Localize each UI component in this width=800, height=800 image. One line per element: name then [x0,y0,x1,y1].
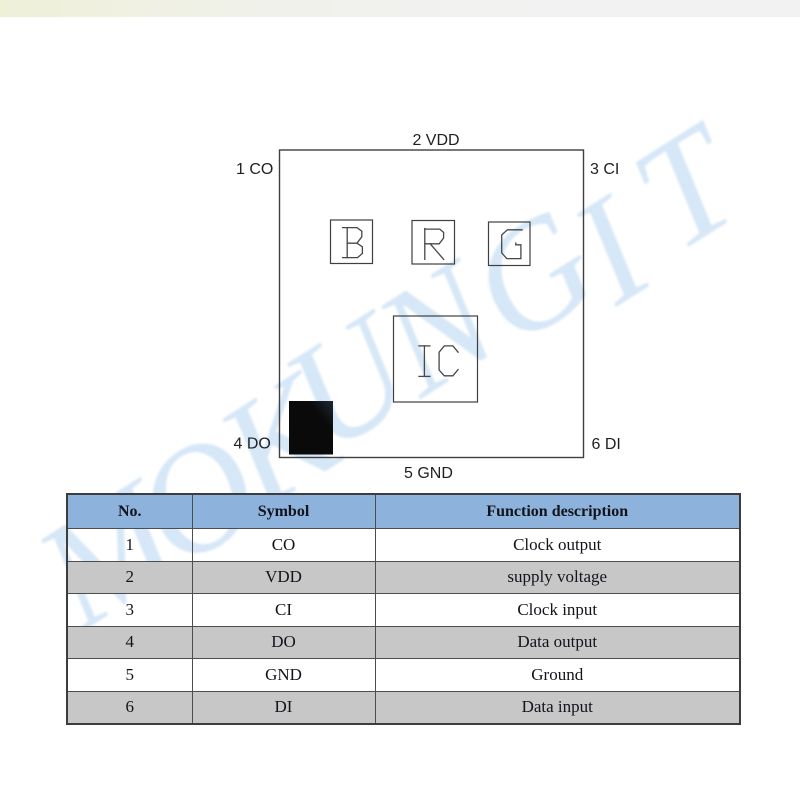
svg-text:4 DO: 4 DO [234,436,271,453]
svg-text:5 GND: 5 GND [404,465,453,482]
svg-text:2 VDD: 2 VDD [412,132,459,149]
svg-text:6 DI: 6 DI [592,436,621,453]
svg-text:1 CO: 1 CO [236,161,273,178]
svg-text:3 CI: 3 CI [590,161,619,178]
